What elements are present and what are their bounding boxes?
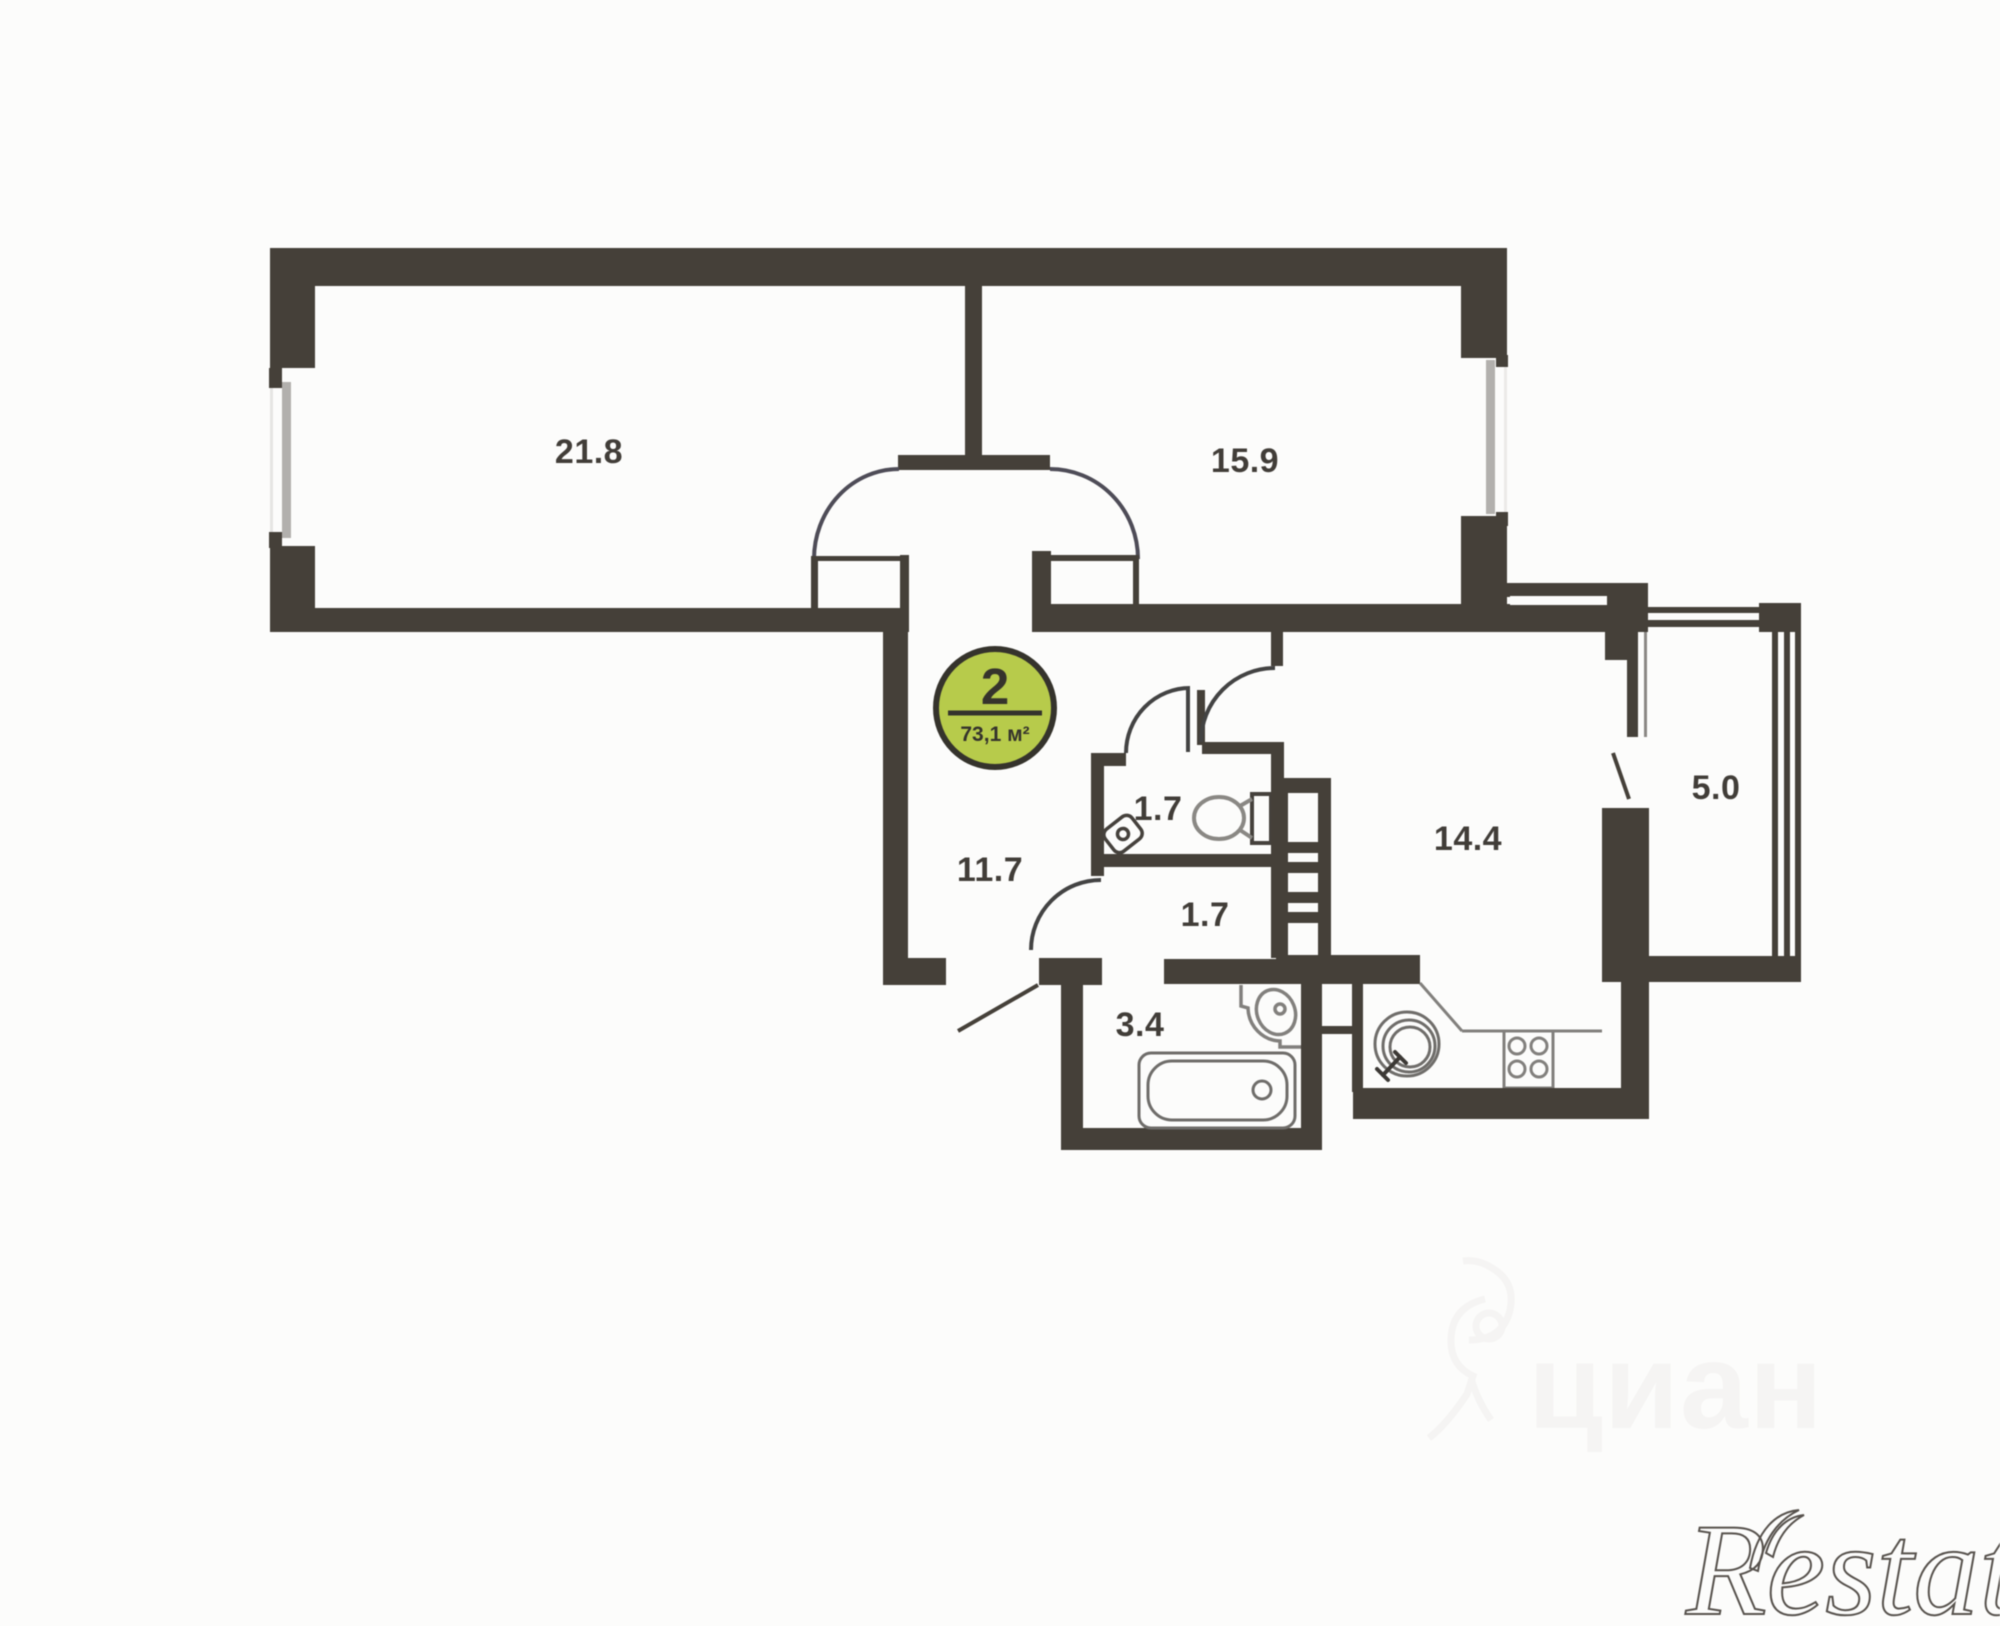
svg-text:3.4: 3.4 — [1116, 1006, 1165, 1044]
svg-text:73,1 м²: 73,1 м² — [960, 723, 1029, 746]
svg-text:5.0: 5.0 — [1692, 769, 1741, 807]
svg-text:Restate: Restate — [1685, 1496, 2000, 1626]
svg-text:2: 2 — [981, 658, 1009, 715]
svg-text:15.9: 15.9 — [1211, 442, 1279, 480]
svg-text:11.7: 11.7 — [957, 851, 1023, 889]
svg-text:1.7: 1.7 — [1181, 896, 1230, 934]
svg-text:1.7: 1.7 — [1134, 790, 1183, 828]
svg-text:21.8: 21.8 — [555, 433, 623, 471]
svg-text:14.4: 14.4 — [1434, 820, 1502, 858]
svg-text:циан: циан — [1528, 1318, 1824, 1454]
